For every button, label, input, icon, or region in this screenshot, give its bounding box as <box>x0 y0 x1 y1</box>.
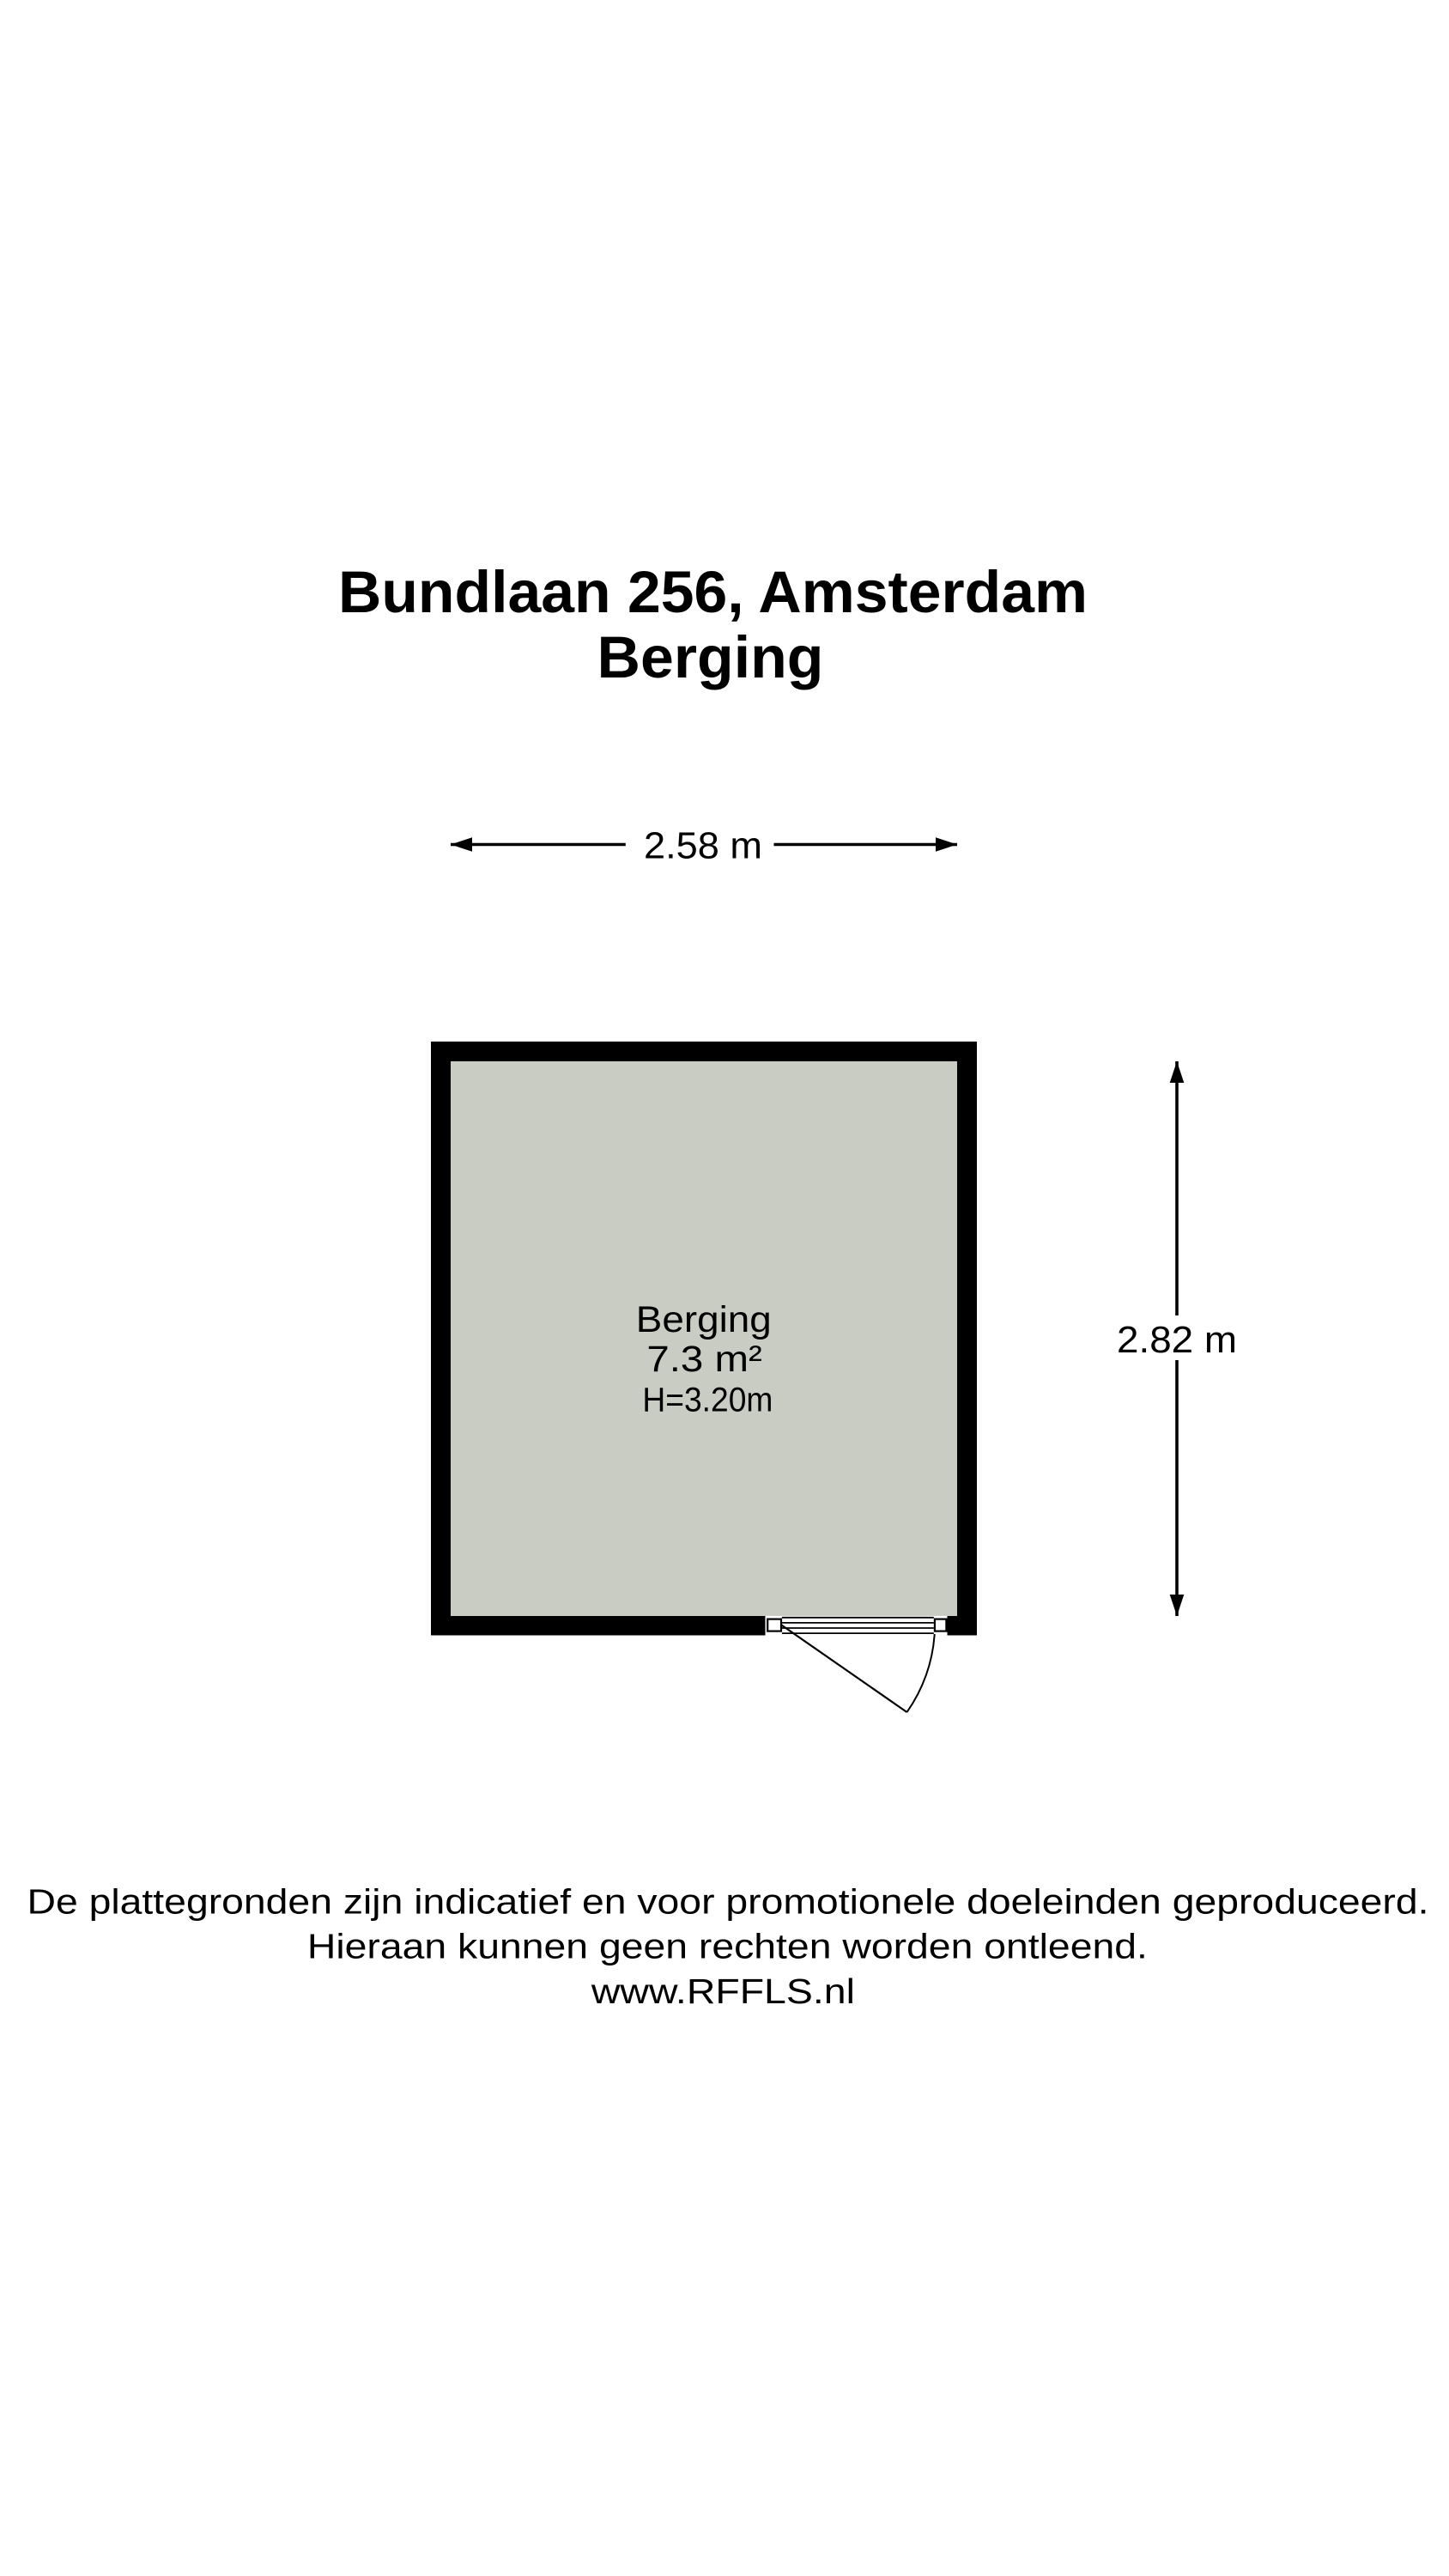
svg-text:2.58 m: 2.58 m <box>644 825 762 867</box>
svg-text:De plattegronden zijn indicati: De plattegronden zijn indicatief en voor… <box>27 1882 1429 1922</box>
svg-text:2.82 m: 2.82 m <box>1117 1319 1237 1361</box>
svg-text:www.RFFLS.nl: www.RFFLS.nl <box>591 1971 855 2011</box>
svg-text:Berging: Berging <box>636 1299 772 1340</box>
svg-text:Berging: Berging <box>597 624 824 690</box>
svg-text:H=3.20m: H=3.20m <box>642 1381 773 1419</box>
svg-text:Bundlaan 256, Amsterdam: Bundlaan 256, Amsterdam <box>338 559 1088 625</box>
svg-text:Hieraan kunnen geen rechten wo: Hieraan kunnen geen rechten worden ontle… <box>307 1926 1148 1965</box>
svg-text:7.3 m²: 7.3 m² <box>646 1339 762 1380</box>
